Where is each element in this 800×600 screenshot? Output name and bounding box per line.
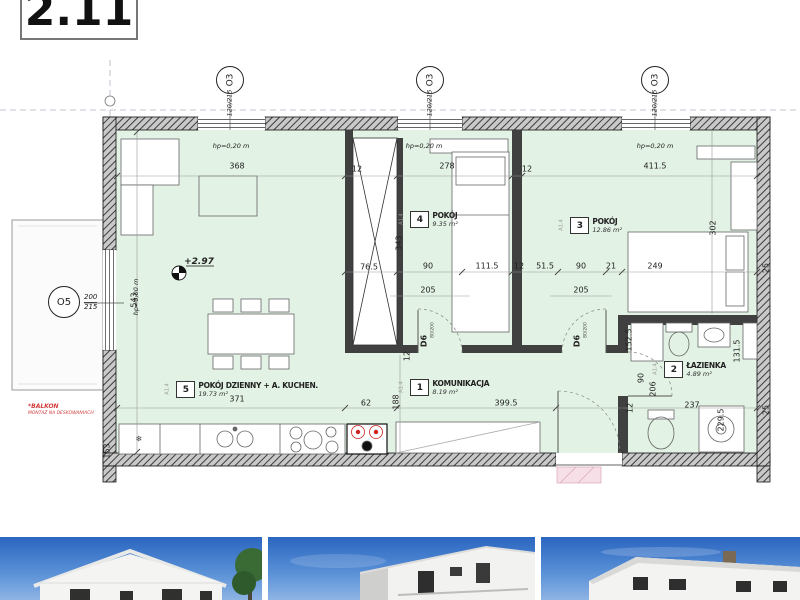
dimension-label: 302: [709, 220, 718, 235]
dimension-label: 205: [420, 286, 435, 295]
dimension-label: 368: [229, 162, 244, 171]
balcony-door-size: 200 215: [84, 293, 97, 311]
dimension-label: 25: [762, 263, 771, 273]
room-name: POKÓJ DZIENNY + A. KUCHEN.: [198, 381, 318, 390]
room-area: 8.19 m²: [432, 388, 489, 396]
apartment-ref: A1.4: [559, 219, 565, 230]
room-area: 12.86 m²: [592, 226, 622, 234]
window-marker-label: O3: [650, 74, 660, 87]
door-tag: D6: [420, 335, 429, 347]
dimension-label: 205: [573, 286, 588, 295]
room-label-hallway: A1.4 1 KOMUNIKACJA 8.19 m²: [396, 379, 489, 396]
window-marker-label: O3: [425, 74, 435, 87]
room-label-bathroom: A1.4 2 ŁAZIENKA 4.89 m²: [650, 361, 726, 378]
dimension-label: 343: [395, 235, 404, 250]
dimension-label: 12: [403, 351, 412, 361]
dimension-label: 206: [649, 381, 658, 396]
apartment-ref: A1.4: [165, 383, 171, 394]
window-marker-3: O3 120/215: [638, 66, 672, 112]
apartment-ref: A1.4: [399, 213, 405, 224]
room-name: POKÓJ: [432, 211, 457, 220]
balcony-note: *BALKON MONTAŻ NA DESKOWANIACH: [28, 402, 94, 418]
window-marker-1: O3 120/215: [213, 66, 247, 112]
unit-number: 2.11: [25, 0, 134, 28]
door-size: 80/200: [431, 322, 436, 338]
dimension-label: 21: [606, 262, 616, 271]
room-name: POKÓJ: [592, 217, 622, 226]
window-sill-height: hp=0,20 m: [637, 142, 674, 150]
dimension-label: 249: [647, 262, 662, 271]
balcony-door-marker-label: O5: [57, 297, 71, 308]
reference-lines: [0, 60, 800, 117]
floor-plan-page: 2.11: [0, 0, 800, 600]
dimension-label: 12: [522, 165, 532, 174]
entrance-mat: [557, 467, 601, 483]
dimension-label: 399.5: [495, 399, 518, 408]
window-size-label: 120/215: [226, 89, 234, 116]
dimension-label: 12: [514, 262, 524, 271]
dimension-label: 371: [229, 395, 244, 404]
dimension-label: 62: [361, 399, 371, 408]
room-area: 4.89 m²: [686, 370, 725, 378]
window-size-label: 120/215: [426, 89, 434, 116]
dimension-label: 188: [392, 394, 401, 409]
balcony-door-marker-circle: O5: [48, 286, 80, 318]
room-number: 1: [410, 379, 429, 396]
room-name: KOMUNIKACJA: [432, 379, 489, 388]
floor-level-label: +2.97: [184, 257, 214, 267]
room-label-bedroom-4: A1.4 4 POKÓJ 9.35 m²: [396, 211, 458, 228]
room-number: 2: [664, 361, 683, 378]
dimension-label: 152.5: [625, 329, 634, 352]
window-marker-2: O3 120/215: [413, 66, 447, 112]
photo-building-2: [268, 537, 535, 600]
room-area: 9.35 m²: [432, 220, 457, 228]
room-label-bedroom-3: A1.4 3 POKÓJ 12.86 m²: [556, 217, 622, 234]
photo-building-1: [0, 537, 262, 600]
dimension-label: 25: [762, 405, 771, 415]
room-number: 3: [570, 217, 589, 234]
window-sill-height: hp=0,20 m: [406, 142, 443, 150]
room-area: 19.73 m²: [198, 390, 318, 398]
floor-plan-drawing: [0, 0, 800, 535]
dimension-label: 237: [684, 401, 699, 410]
room-number: 5: [176, 381, 195, 398]
window-size-label: 120/215: [651, 89, 659, 116]
window-marker-label: O3: [225, 74, 235, 87]
photo-building-3: [541, 537, 800, 600]
dimension-label: 12: [352, 165, 362, 174]
door-size: 80/200: [584, 322, 589, 338]
dimension-label: 51.5: [536, 262, 554, 271]
room-number: 4: [410, 211, 429, 228]
fridge-icon: ❄: [136, 435, 143, 444]
unit-number-box: 2.11: [20, 0, 138, 40]
door-tag: D6: [573, 335, 582, 347]
dimension-label: 90: [637, 373, 646, 383]
dimension-label: 411.5: [644, 162, 667, 171]
apartment-ref: A1.4: [653, 363, 659, 374]
dimension-label: 229.5: [717, 409, 726, 432]
dimension-label: 543: [130, 292, 139, 307]
balcony-door-marker: O5 200 215: [48, 286, 97, 318]
dimension-label: 278: [439, 162, 454, 171]
dimension-label: 131.5: [733, 340, 742, 363]
dimension-label: 153: [103, 443, 112, 458]
dimension-label: 90: [423, 262, 433, 271]
room-name: ŁAZIENKA: [686, 361, 725, 370]
grid-node: [105, 96, 115, 106]
window-sill-height: hp=0,20 m: [213, 142, 250, 150]
apartment-ref: A1.4: [399, 381, 405, 392]
dimension-label: 12: [626, 403, 635, 413]
dimension-label: 90: [576, 262, 586, 271]
dimension-label: 111.5: [476, 262, 499, 271]
dimension-label: 76.5: [360, 263, 378, 272]
